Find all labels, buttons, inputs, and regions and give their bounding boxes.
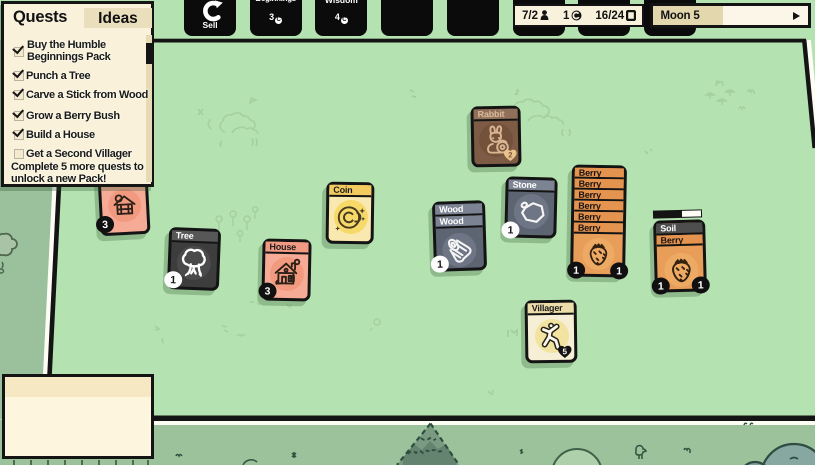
svg-text:2: 2	[508, 150, 512, 159]
svg-text:5: 5	[562, 347, 567, 356]
